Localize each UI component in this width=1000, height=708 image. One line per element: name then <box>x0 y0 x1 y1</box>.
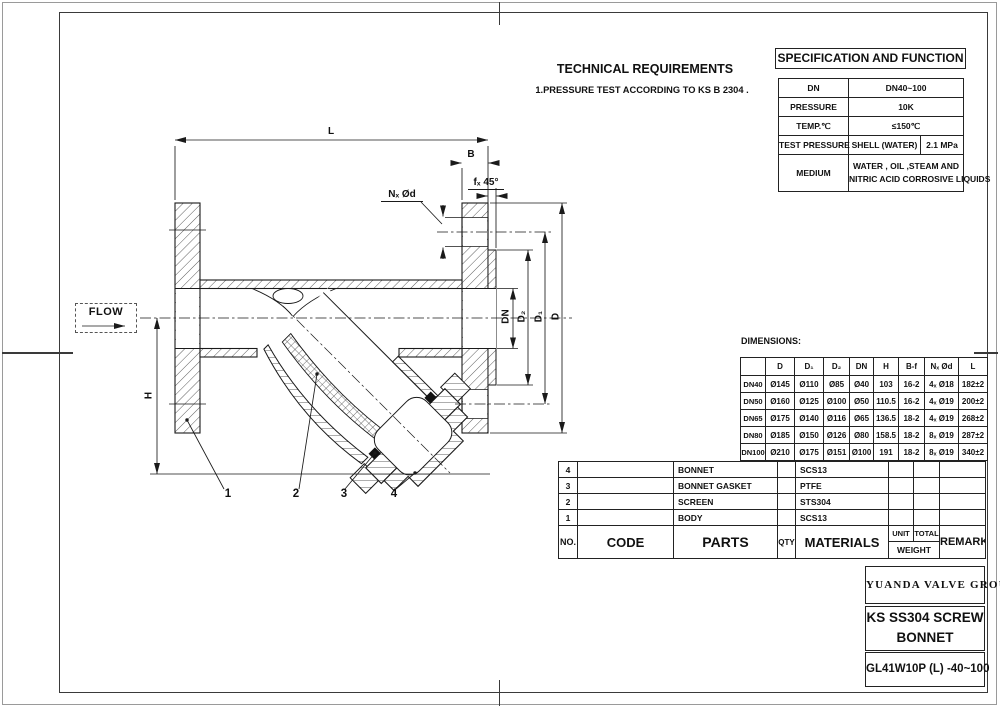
dims-row-dn50: DN50Ø160Ø125Ø100Ø50110.516-24ₓ Ø19200±2 <box>741 393 988 410</box>
part-number-3: 3 <box>337 488 351 500</box>
spec-pressure-value: 10K <box>849 98 964 117</box>
spec-test-pressure-value: 2.1 MPa <box>921 136 964 155</box>
dim-label-f45: fₓ 45° <box>468 177 504 190</box>
spec-temp-value: ≤150℃ <box>849 117 964 136</box>
part-number-4: 4 <box>387 488 401 500</box>
spec-dn-label: DN <box>779 79 849 98</box>
dims-row-dn80: DN80Ø185Ø150Ø126Ø80158.518-28ₓ Ø19287±2 <box>741 427 988 444</box>
technical-requirements-note: 1.PRESSURE TEST ACCORDING TO KS B 2304 . <box>508 85 776 95</box>
spec-dn-value: DN40~100 <box>849 79 964 98</box>
dim-label-n-od: Nₓ Ød <box>381 189 423 202</box>
dim-label-L: L <box>321 126 341 137</box>
parts-list-table: 4BONNETSCS13 3BONNET GASKETPTFE 2SCREENS… <box>558 461 986 559</box>
dims-row-dn65: DN65Ø175Ø140Ø116Ø65136.518-24ₓ Ø19268±2 <box>741 410 988 427</box>
spec-temp-label: TEMP.℃ <box>779 117 849 136</box>
spec-medium-label: MEDIUM <box>779 155 849 192</box>
spec-pressure-label: PRESSURE <box>779 98 849 117</box>
dim-label-B: B <box>461 149 481 160</box>
flow-label: FLOW <box>76 306 136 318</box>
dims-row-dn40: DN40Ø145Ø110Ø85Ø4010316-24ₓ Ø18182±2 <box>741 376 988 393</box>
flow-direction-box: FLOW <box>75 303 137 333</box>
dims-header-row: D D₁ D₂ DN H B-f Nₓ Ød L <box>741 358 988 376</box>
dim-label-D: D <box>551 302 562 332</box>
parts-row-4: 4BONNETSCS13 <box>559 462 986 478</box>
parts-row-3: 3BONNET GASKETPTFE <box>559 478 986 494</box>
dim-label-D1: D₁ <box>534 302 545 332</box>
part-number-1: 1 <box>221 488 235 500</box>
dimensions-caption: DIMENSIONS: <box>741 336 831 346</box>
dims-row-dn100: DN100Ø210Ø175Ø151Ø10019118-28ₓ Ø19340±2 <box>741 444 988 461</box>
technical-requirements-title: TECHNICAL REQUIREMENTS <box>545 62 745 76</box>
part-number-2: 2 <box>289 488 303 500</box>
company-name: YUANDA VALVE GROUP <box>865 566 985 604</box>
specification-table: DN DN40~100 PRESSURE 10K TEMP.℃ ≤150℃ TE… <box>778 78 964 192</box>
dim-label-DN: DN <box>501 302 512 332</box>
spec-test-pressure-label: TEST PRESSURE <box>779 136 849 155</box>
dim-label-D2: D₂ <box>517 302 528 332</box>
specification-title: SPECIFICATION AND FUNCTION <box>775 48 966 69</box>
product-name: KS SS304 SCREW BONNET STRAINER <box>865 606 985 651</box>
drawing-sheet: L B fₓ 45° Nₓ Ød DN D₂ D₁ D H 1 2 3 4 FL… <box>0 0 1000 708</box>
parts-header-row: NO. CODE PARTS QTY MATERIALS UNIT TOTAL … <box>559 526 986 542</box>
dimensions-table: D D₁ D₂ DN H B-f Nₓ Ød L DN40Ø145Ø110Ø85… <box>740 357 988 461</box>
parts-row-1: 1BODYSCS13 <box>559 510 986 526</box>
dim-label-H: H <box>144 382 155 410</box>
spec-medium-value: WATER , OIL ,STEAM AND NITRIC ACID CORRO… <box>849 155 964 192</box>
model-number: GL41W10P (L) -40~100 <box>865 652 985 687</box>
spec-test-pressure-mid: SHELL (WATER) <box>849 136 921 155</box>
parts-row-2: 2SCREENSTS304 <box>559 494 986 510</box>
